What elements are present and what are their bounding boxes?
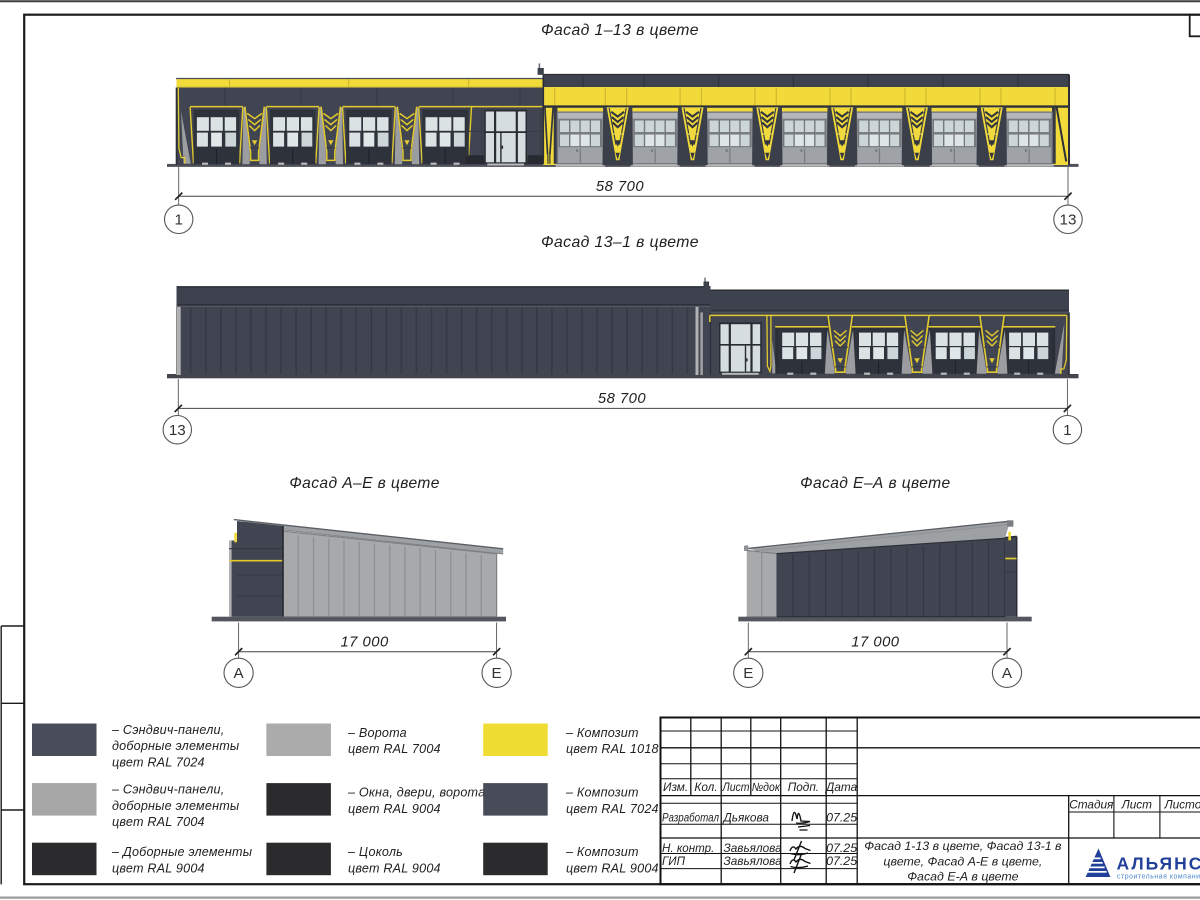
svg-text:А: А [1002,665,1013,682]
svg-text:АЛЬЯНС: АЛЬЯНС [1117,854,1200,874]
svg-text:– Композит: – Композит [565,726,639,740]
svg-text:07.25: 07.25 [826,854,857,868]
svg-text:А: А [234,665,245,682]
svg-text:– Доборные элементы: – Доборные элементы [111,845,253,859]
svg-text:Фасад 1–13 в цвете: Фасад 1–13 в цвете [541,22,699,39]
svg-text:строительная компания: строительная компания [1117,874,1200,881]
svg-text:Дьякова: Дьякова [722,811,770,825]
svg-text:Разработал: Разработал [662,812,719,825]
svg-text:Фасад Е–А в цвете: Фасад Е–А в цвете [800,475,950,492]
svg-text:Н. контр.: Н. контр. [662,842,714,855]
svg-text:цвет RAL 7024: цвет RAL 7024 [112,755,205,769]
svg-text:Дата: Дата [824,780,858,794]
svg-text:цвет RAL 7004: цвет RAL 7004 [112,815,205,829]
svg-text:13: 13 [1060,212,1077,229]
svg-text:Листов: Листов [1164,798,1200,812]
svg-text:58 700: 58 700 [596,179,645,195]
svg-text:доборные элементы: доборные элементы [112,739,240,753]
svg-text:Подп.: Подп. [788,780,819,794]
svg-text:Фасад А–Е в цвете: Фасад А–Е в цвете [289,475,439,492]
svg-text:Стадия: Стадия [1069,798,1114,812]
svg-text:1: 1 [174,212,182,229]
svg-text:цвет RAL 9004: цвет RAL 9004 [348,861,441,875]
svg-text:– Ворота: – Ворота [347,726,407,740]
svg-text:Лист: Лист [1121,798,1153,812]
svg-text:цвет RAL 7024: цвет RAL 7024 [566,802,659,816]
svg-text:Е: Е [743,665,753,682]
svg-text:– Композит: – Композит [565,845,639,859]
svg-text:– Цоколь: – Цоколь [347,845,403,859]
svg-text:07.25: 07.25 [826,811,857,825]
svg-text:– Окна, двери, ворота: – Окна, двери, ворота [347,786,485,800]
svg-text:– Сэндвич-панели,: – Сэндвич-панели, [111,783,224,797]
svg-text:17 000: 17 000 [340,634,389,650]
svg-text:цвете, Фасад А-Е в цвете,: цвете, Фасад А-Е в цвете, [883,854,1042,868]
svg-text:цвет RAL 9004: цвет RAL 9004 [566,861,659,875]
svg-text:58 700: 58 700 [598,391,647,407]
svg-text:цвет RAL 9004: цвет RAL 9004 [112,861,205,875]
svg-text:Кол.: Кол. [694,780,717,794]
svg-text:доборные элементы: доборные элементы [112,799,240,813]
svg-text:Фасад 1-13 в цвете, Фасад 13-1: Фасад 1-13 в цвете, Фасад 13-1 в [864,839,1062,853]
svg-text:17 000: 17 000 [851,634,900,650]
svg-text:07.25: 07.25 [826,841,857,855]
svg-text:Завьялова: Завьялова [724,841,783,855]
svg-text:цвет RAL 1018: цвет RAL 1018 [566,742,659,756]
svg-text:цвет RAL 9004: цвет RAL 9004 [348,802,441,816]
svg-text:Фасад Е-А в цвете: Фасад Е-А в цвете [907,870,1018,884]
svg-text:Фасад 13–1 в цвете: Фасад 13–1 в цвете [541,234,699,251]
svg-text:Изм.: Изм. [663,780,688,794]
svg-text:ГИП: ГИП [662,855,686,868]
svg-text:– Композит: – Композит [565,786,639,800]
svg-text:– Сэндвич-панели,: – Сэндвич-панели, [111,723,224,737]
svg-text:№док: №док [752,780,780,794]
svg-text:Е: Е [492,665,502,682]
svg-text:Лист: Лист [722,780,750,794]
svg-text:13: 13 [169,422,186,439]
svg-text:Завьялова: Завьялова [724,854,783,868]
svg-text:1: 1 [1063,422,1071,439]
svg-text:цвет RAL 7004: цвет RAL 7004 [348,742,441,756]
